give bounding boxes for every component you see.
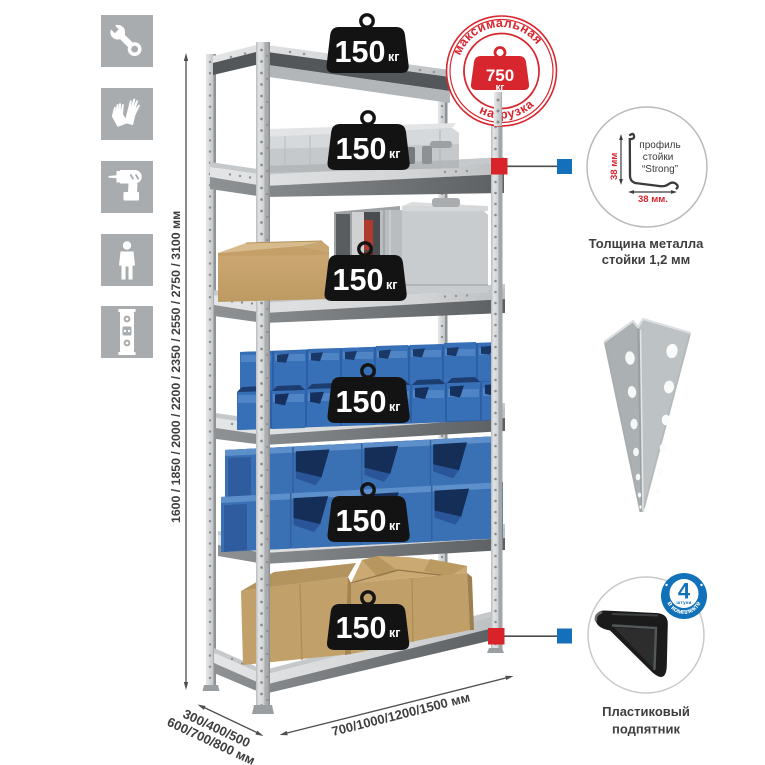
svg-text:150: 150 (336, 611, 387, 645)
svg-text:штуки: штуки (676, 600, 691, 605)
svg-text:38 мм.: 38 мм. (638, 194, 668, 205)
svg-text:кг: кг (389, 626, 400, 640)
svg-text:кг: кг (388, 50, 399, 64)
svg-text:Толщина металла: Толщина металла (589, 236, 704, 251)
svg-text:кг: кг (496, 82, 505, 93)
svg-text:150: 150 (336, 504, 387, 538)
svg-text:150: 150 (335, 35, 386, 69)
svg-text:кг: кг (389, 400, 400, 414)
svg-text:кг: кг (389, 519, 400, 533)
svg-text:профиль: профиль (639, 139, 680, 151)
svg-text:150: 150 (336, 385, 387, 419)
svg-text:1600 / 1850 / 2000 / 2200 / 23: 1600 / 1850 / 2000 / 2200 / 2350 / 2550 … (169, 211, 183, 523)
svg-text:Пластиковый: Пластиковый (602, 704, 690, 719)
svg-text:150: 150 (336, 132, 387, 166)
svg-text:стойки: стойки (643, 152, 674, 163)
svg-text:“Strong”: “Strong” (642, 164, 678, 175)
svg-text:кг: кг (386, 278, 397, 292)
svg-text:38 мм: 38 мм (609, 153, 620, 180)
svg-text:подпятник: подпятник (612, 722, 681, 737)
svg-text:кг: кг (389, 147, 400, 161)
svg-text:стойки 1,2 мм: стойки 1,2 мм (602, 252, 690, 267)
svg-text:150: 150 (333, 263, 384, 297)
